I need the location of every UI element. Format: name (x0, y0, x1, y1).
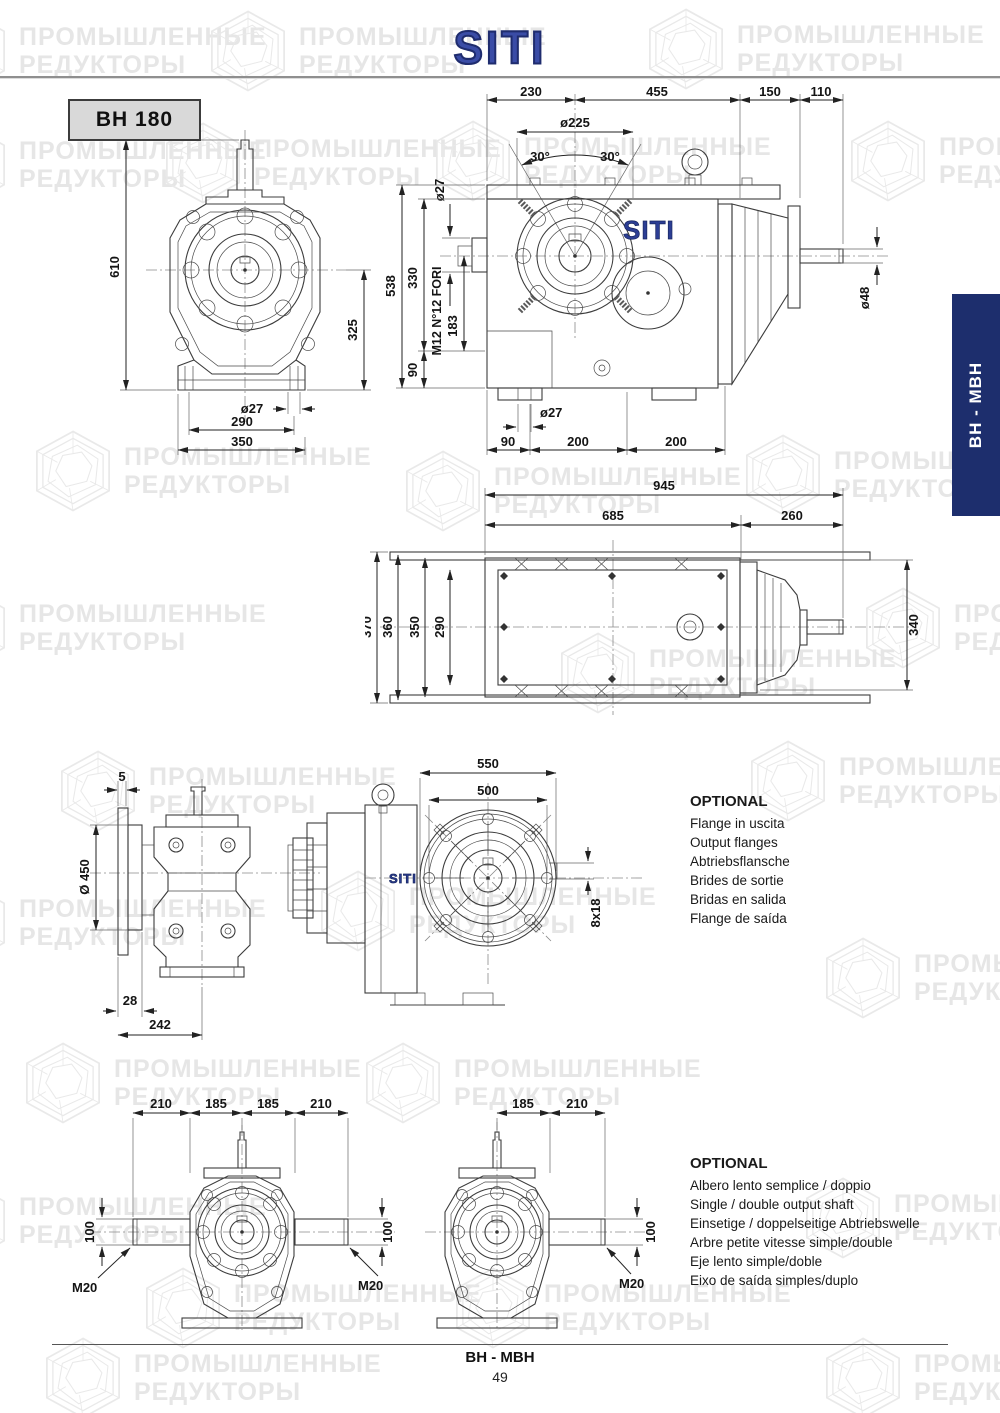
watermark-line2: РЕДУКТОРЫ (914, 978, 1000, 1006)
dim-325: 325 (345, 319, 360, 341)
note-line: Albero lento semplice / doppio (690, 1176, 995, 1195)
holes-note: M12 N°12 FORI (430, 266, 444, 355)
dim-685: 685 (602, 508, 624, 523)
dim-185l: 185 (205, 1096, 227, 1111)
hexagon-logo-icon (0, 1178, 11, 1264)
optional-title: OPTIONAL (690, 1155, 995, 1172)
watermark-line1: ПРОМЫШЛЕННЫЕ (114, 1055, 362, 1083)
drawing-flange-side: 5 Ø 450 28 242 (70, 765, 325, 1045)
watermark-line2: РЕДУКТОРЫ (954, 628, 1000, 656)
optional-flanges-note: OPTIONAL Flange in uscita Output flanges… (690, 793, 995, 928)
dim-610: 610 (107, 256, 122, 278)
watermark-line1: ПРОМЫШЛЕННЫЕ (914, 950, 1000, 978)
note-line: Einsetige / doppelseitige Abtriebswelle (690, 1214, 995, 1233)
watermark-line1: ПРОМЫШЛЕННЫЕ (954, 600, 1000, 628)
watermark-line1: ПРОМЫШЛЕННЫЕ (19, 600, 267, 628)
catalog-page: ПРОМЫШЛЕННЫЕ РЕДУКТОРЫ ПРОМЫШЛЕННЫЕ РЕДУ… (0, 0, 1000, 1413)
drawing-front-view: 610 325 ø27 290 350 (90, 122, 390, 477)
dim-210s: 210 (566, 1096, 588, 1111)
dim-m20-right: M20 (358, 1278, 383, 1293)
watermark-line2: РЕДУКТОРЫ (19, 628, 267, 656)
hexagon-logo-icon (0, 880, 11, 966)
note-line: Bridas en salida (690, 890, 995, 909)
dim-230: 230 (520, 86, 542, 99)
drawing-double-shaft: 210 185 185 210 100 (70, 1080, 415, 1330)
note-line: Arbre petite vitesse simple/double (690, 1233, 995, 1252)
dim-550: 550 (477, 756, 499, 771)
dim-210l: 210 (150, 1096, 172, 1111)
dim-foot-200b: 200 (665, 434, 687, 449)
hexagon-logo-icon (0, 585, 11, 671)
dim-5: 5 (118, 769, 125, 784)
dim-242: 242 (149, 1017, 171, 1032)
note-line: Flange de saída (690, 909, 995, 928)
watermark-line1: ПРОМЫШЛЕННЫЕ (839, 753, 1000, 781)
dim-90: 90 (405, 363, 420, 377)
dim-100-single: 100 (643, 1221, 658, 1243)
dim-foot-hole-27: ø27 (540, 405, 562, 420)
dim-input-27: ø27 (432, 179, 447, 201)
dim-340: 340 (906, 614, 921, 636)
header-rule (0, 76, 1000, 79)
footer-title: BH - MBH (0, 1349, 1000, 1366)
watermark: ПРОМЫШЛЕННЫЕ РЕДУКТОРЫ (820, 935, 1000, 1021)
side-tab-label: BH - MBH (966, 362, 986, 448)
hexagon-logo-icon (820, 935, 906, 1021)
model-label: BH 180 (68, 99, 201, 141)
dim-370: 370 (365, 616, 374, 638)
watermark: ПРОМЫШЛЕННЫЕ РЕДУКТОРЫ (0, 585, 267, 671)
note-line: Output flanges (690, 833, 995, 852)
note-line: Eixo de saída simples/duplo (690, 1271, 995, 1290)
dim-m20-single: M20 (619, 1276, 644, 1291)
note-line: Abtriebsflansche (690, 852, 995, 871)
note-line: Flange in uscita (690, 814, 995, 833)
side-tab-bh-mbh: BH - MBH (952, 294, 1000, 516)
dim-500: 500 (477, 783, 499, 798)
optional-title: OPTIONAL (690, 793, 995, 810)
dim-945: 945 (653, 478, 675, 493)
dim-flange-225: ø225 (560, 115, 590, 130)
dim-150: 150 (759, 86, 781, 99)
dim-210r: 210 (310, 1096, 332, 1111)
drawing-side-view: 230 455 150 110 ø225 30° 30° (380, 86, 955, 471)
dim-28: 28 (123, 993, 137, 1008)
dim-110: 110 (811, 86, 832, 99)
note-line: Single / double output shaft (690, 1195, 995, 1214)
dim-350b: 350 (407, 616, 422, 638)
dim-angle-left: 30° (530, 149, 550, 164)
housing-logo: SITI (623, 215, 675, 245)
drawing-flange-front: 550 500 SITI (295, 755, 675, 1040)
dim-185s: 185 (512, 1096, 534, 1111)
dim-290b: 290 (432, 616, 447, 638)
dim-100-right: 100 (380, 1221, 395, 1243)
page-number: 49 (0, 1369, 1000, 1385)
dim-455: 455 (646, 86, 668, 99)
dim-foot-90: 90 (501, 434, 515, 449)
flange-body-logo: SITI (389, 871, 417, 886)
dim-260: 260 (781, 508, 803, 523)
dim-350: 350 (231, 434, 253, 449)
dim-360: 360 (380, 616, 395, 638)
note-line: Eje lento simple/doble (690, 1252, 995, 1271)
drawing-single-shaft: 185 210 100 M20 (415, 1080, 680, 1330)
dim-shaft-48: ø48 (857, 287, 872, 309)
drawing-top-view: 945 685 260 370 360 350 290 340 (365, 470, 950, 715)
watermark-line1: ПРОМЫШЛЕННЫЕ (454, 1055, 702, 1083)
dim-100-left: 100 (82, 1221, 97, 1243)
dim-538: 538 (383, 275, 398, 297)
dim-290: 290 (231, 414, 253, 429)
hexagon-logo-icon (0, 122, 11, 208)
optional-shafts-note: OPTIONAL Albero lento semplice / doppio … (690, 1155, 995, 1290)
footer-rule (52, 1344, 948, 1345)
dim-foot-200a: 200 (567, 434, 589, 449)
dim-330: 330 (405, 267, 420, 289)
siti-logo: SITI (0, 23, 1000, 76)
dim-slot-8x18: 8x18 (588, 899, 603, 928)
dim-angle-right: 30° (600, 149, 620, 164)
dim-183: 183 (445, 315, 460, 337)
dim-m20-left: M20 (72, 1280, 97, 1295)
dim-450: Ø 450 (77, 859, 92, 894)
dim-185r: 185 (257, 1096, 279, 1111)
note-line: Brides de sortie (690, 871, 995, 890)
